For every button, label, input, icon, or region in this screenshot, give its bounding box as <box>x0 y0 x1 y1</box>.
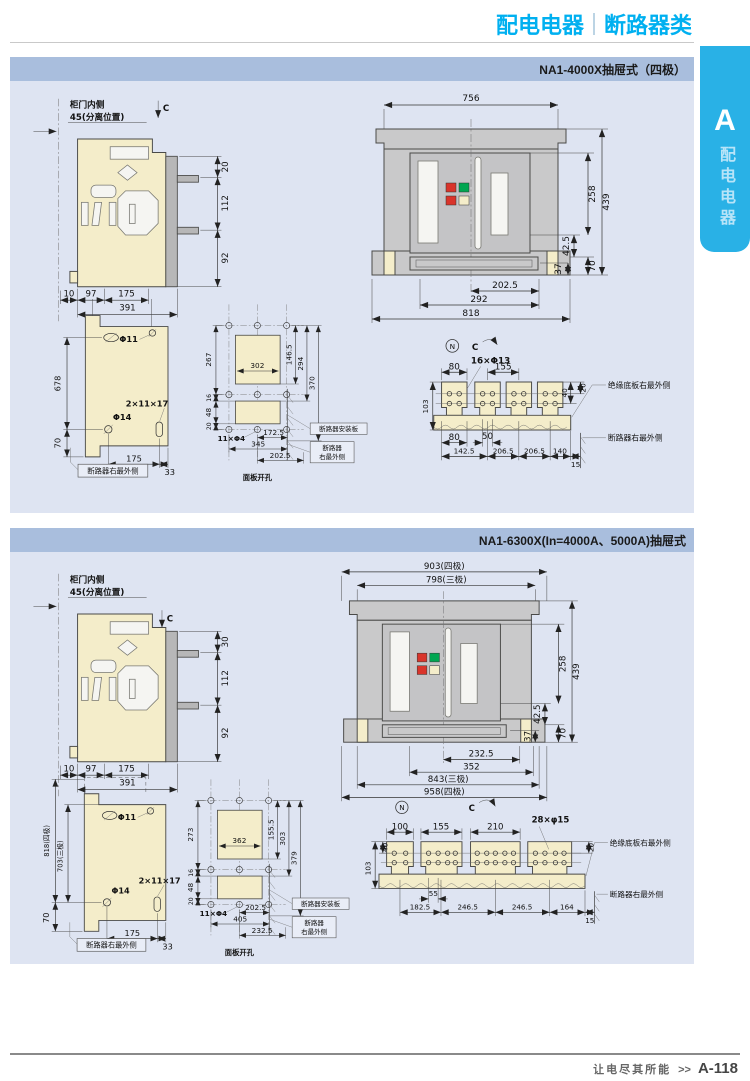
cutout-caption: 面板开孔 <box>225 948 255 957</box>
dim-379: 379 <box>289 851 298 865</box>
plate-view-drawing-1: Φ11 Φ14 2×11×17 678 70 175 33 断路器右最外侧 <box>30 299 205 478</box>
dim-37: 37 <box>523 731 533 742</box>
section-c-mark: C <box>158 101 169 118</box>
slot-label: 2×11×17 <box>139 875 181 885</box>
hole-phi11-label: Φ11 <box>119 334 138 344</box>
breaker-edge-reference <box>586 843 608 924</box>
dim-258: 258 <box>588 185 598 202</box>
dim-40: 40 <box>560 388 569 398</box>
dim-246-5-a: 246.5 <box>457 902 477 911</box>
breaker-edge-reference <box>572 385 606 468</box>
dim-175: 175 <box>125 928 141 938</box>
header-rule <box>10 42 694 43</box>
header-title-separator <box>593 13 595 35</box>
dim-206-5-a: 206.5 <box>493 446 514 455</box>
dim-33: 33 <box>162 941 172 951</box>
dim-33: 33 <box>165 467 176 477</box>
door-note-line2: 45(分离位置) <box>70 111 124 123</box>
dim-232-5: 232.5 <box>252 926 273 935</box>
breaker-side-body <box>70 614 199 762</box>
dim-206-5-b: 206.5 <box>524 446 545 455</box>
door-note-line2: 45(分离位置) <box>70 586 124 598</box>
indicator-cream <box>459 196 469 205</box>
dim-202-5: 202.5 <box>245 903 266 912</box>
mounting-plate-label: 断路器安装板 <box>301 899 341 908</box>
section-c-label: C <box>167 615 173 625</box>
dim-16: 16 <box>188 869 195 877</box>
dim-843: 843(三极) <box>428 773 469 785</box>
dim-439: 439 <box>572 663 582 680</box>
mark-n: N <box>399 803 404 812</box>
dim-202-5: 202.5 <box>492 281 518 291</box>
cutout-openings <box>226 322 290 432</box>
footer-page-number: A-118 <box>698 1060 738 1077</box>
hole-phi14-label: Φ14 <box>113 412 132 422</box>
dim-175: 175 <box>118 289 134 299</box>
dim-818-4p: 818(四极) <box>42 825 51 857</box>
mark-c: C <box>472 343 478 353</box>
dim-70: 70 <box>588 260 598 272</box>
dim-48: 48 <box>206 407 213 417</box>
left-dimension-lines <box>195 801 218 905</box>
dim-70: 70 <box>558 728 568 739</box>
holes-11xphi4: 11×Φ4 <box>218 434 246 443</box>
indicator-cream <box>430 666 440 675</box>
footer-arrows: >> <box>678 1064 691 1076</box>
hole-phi11-label: Φ11 <box>118 812 137 822</box>
dim-70: 70 <box>41 913 51 923</box>
dim-362: 362 <box>232 836 246 845</box>
view-marks: N C <box>396 800 496 814</box>
dim-140: 140 <box>553 446 567 455</box>
dim-155-5: 155.5 <box>267 819 276 840</box>
footer-rule <box>10 1053 740 1055</box>
insulating-base-edge-label: 绝缘底板右最外侧 <box>610 838 671 848</box>
insulating-base-edge-label: 绝缘底板右最外侧 <box>608 380 671 390</box>
dim-703-3p: 703(三极) <box>56 840 65 872</box>
dim-20: 20 <box>206 422 213 430</box>
plate-body <box>85 299 168 457</box>
dim-92: 92 <box>221 252 231 263</box>
dim-55: 55 <box>429 889 438 898</box>
cutout-openings <box>208 797 272 907</box>
busbar-view-drawing-1: N C <box>422 333 692 480</box>
dim-210: 210 <box>487 822 503 832</box>
section-label: 配电电器 <box>713 146 737 230</box>
dim-155: 155 <box>495 362 512 372</box>
panel2-body: 柜门内侧 45(分离位置) C <box>10 552 694 964</box>
holes-28xphi15: 28×φ15 <box>532 816 570 826</box>
dim-267: 267 <box>206 352 213 366</box>
dim-80-top: 80 <box>449 362 461 372</box>
dim-100: 100 <box>392 822 408 832</box>
dim-370: 370 <box>307 376 316 390</box>
terminal-blocks <box>379 842 585 889</box>
edge-label-leader <box>70 922 77 944</box>
mark-n: N <box>450 342 455 351</box>
dim-42-5: 42.5 <box>562 236 572 256</box>
mark-c: C <box>469 804 475 814</box>
dim-273: 273 <box>188 827 195 841</box>
plate-body <box>84 777 165 931</box>
breaker-edge-label-2: 右最外侧 <box>319 452 345 461</box>
breaker-edge-label-1: 断路器 <box>304 918 324 927</box>
dim-142-5: 142.5 <box>454 446 475 455</box>
dim-303: 303 <box>278 831 287 845</box>
cutout-view-drawing-2: 362 273 16 48 20 155.5 303 379 <box>188 768 359 963</box>
dim-10: 10 <box>63 289 74 299</box>
drawer-body <box>372 119 570 294</box>
dim-352: 352 <box>463 762 480 772</box>
view-marks: N C <box>446 339 497 352</box>
breaker-right-edge-label: 断路器右最外侧 <box>87 466 138 475</box>
indicator-red-1 <box>446 183 456 192</box>
page-footer: 让电尽其所能 >> A-118 <box>593 1060 738 1077</box>
dim-302: 302 <box>250 361 264 370</box>
indicator-red-1 <box>417 653 427 662</box>
section-tab: A 配电电器 <box>700 46 750 252</box>
dim-439: 439 <box>602 193 612 210</box>
dim-50: 50 <box>482 432 494 442</box>
cutout-caption: 面板开孔 <box>243 473 273 482</box>
breaker-edge-label-1: 断路器 <box>322 443 342 452</box>
dim-112: 112 <box>221 670 231 686</box>
dim-756: 756 <box>462 94 479 104</box>
dim-345: 345 <box>251 440 265 449</box>
cutout-view-drawing-1: 302 267 16 48 20 146.5 294 370 <box>206 293 377 488</box>
door-note-line1: 柜门内侧 <box>69 98 105 110</box>
dim-292: 292 <box>470 295 487 305</box>
left-dimension-lines <box>213 326 236 430</box>
door-note-line1: 柜门内侧 <box>69 573 105 585</box>
dim-405: 405 <box>233 915 247 924</box>
dim-16: 16 <box>206 394 213 402</box>
slot-label: 2×11×17 <box>126 398 169 408</box>
panel1-body: 柜门内侧 45(分离位置) C <box>10 81 694 513</box>
indicator-red-2 <box>417 666 427 675</box>
dim-903: 903(四极) <box>424 560 465 572</box>
plate-view-drawing-2: Φ11 Φ14 2×11×17 818(四极) 703(三极) 70 175 3… <box>30 770 202 956</box>
dim-798: 798(三极) <box>426 574 467 586</box>
hole-phi14-label: Φ14 <box>111 885 130 895</box>
holes-11xphi4: 11×Φ4 <box>200 909 228 918</box>
dim-175: 175 <box>126 453 142 463</box>
indicator-red-2 <box>446 196 456 205</box>
section-c-label: C <box>163 104 169 114</box>
dim-40: 40 <box>381 842 390 852</box>
header-title-sub: 断路器类 <box>604 8 692 40</box>
dim-172-5: 172.5 <box>263 428 284 437</box>
breaker-edge-label-2: 右最外侧 <box>301 927 327 936</box>
dim-70: 70 <box>53 438 63 449</box>
breaker-side-body <box>70 139 199 287</box>
section-c-mark: C <box>162 610 173 627</box>
dim-42-5: 42.5 <box>533 704 543 723</box>
dim-20: 20 <box>188 897 195 905</box>
dim-294: 294 <box>296 356 305 370</box>
indicator-green <box>430 653 440 662</box>
dim-37: 37 <box>554 263 564 274</box>
section-letter: A <box>714 106 736 136</box>
dim-678: 678 <box>53 376 63 392</box>
busbar-view-drawing-2: N C <box>358 794 688 939</box>
breaker-right-edge-label: 断路器右最外侧 <box>86 941 137 950</box>
mounting-plate-label: 断路器安装板 <box>319 424 359 433</box>
dim-258: 258 <box>558 656 568 673</box>
dim-246-5-b: 246.5 <box>512 902 532 911</box>
dim-15: 15 <box>571 460 581 469</box>
catalog-page: 配电电器 断路器类 A 配电电器 NA1-4000X抽屉式（四极） 柜门内侧 4… <box>0 0 750 1081</box>
indicator-green <box>459 183 469 192</box>
dim-155: 155 <box>433 822 449 832</box>
drawer-body <box>344 591 545 763</box>
panel1-title: NA1-4000X抽屉式（四极） <box>10 57 694 81</box>
edge-label-leader <box>71 448 78 470</box>
dim-30: 30 <box>221 636 231 647</box>
dim-232-5: 232.5 <box>469 750 494 760</box>
dim-97: 97 <box>86 289 97 299</box>
dim-164: 164 <box>560 902 574 911</box>
panel-na1-4000x: NA1-4000X抽屉式（四极） 柜门内侧 45(分离位置) C <box>10 57 694 513</box>
dim-182-5: 182.5 <box>410 902 430 911</box>
dim-112: 112 <box>221 195 231 211</box>
header-title-main: 配电电器 <box>496 8 584 40</box>
dim-103: 103 <box>422 399 430 413</box>
dim-20: 20 <box>578 383 587 393</box>
dim-103: 103 <box>363 862 372 876</box>
panel2-title: NA1-6300X(In=4000A、5000A)抽屉式 <box>10 528 694 552</box>
panel-na1-6300x: NA1-6300X(In=4000A、5000A)抽屉式 柜门内侧 45(分离位… <box>10 528 694 964</box>
breaker-right-edge-label: 断路器右最外侧 <box>608 433 663 443</box>
dim-202-5: 202.5 <box>270 451 291 460</box>
breaker-right-edge-label: 断路器右最外侧 <box>610 889 664 899</box>
footer-slogan: 让电尽其所能 <box>593 1061 671 1077</box>
dim-48: 48 <box>188 882 195 892</box>
dim-80-bottom: 80 <box>449 433 461 443</box>
dim-146-5: 146.5 <box>285 344 294 365</box>
page-header: 配电电器 断路器类 <box>496 8 692 40</box>
dim-20: 20 <box>221 161 231 172</box>
dim-15: 15 <box>585 916 594 925</box>
dim-818: 818 <box>462 309 479 319</box>
dim-92: 92 <box>221 727 231 738</box>
